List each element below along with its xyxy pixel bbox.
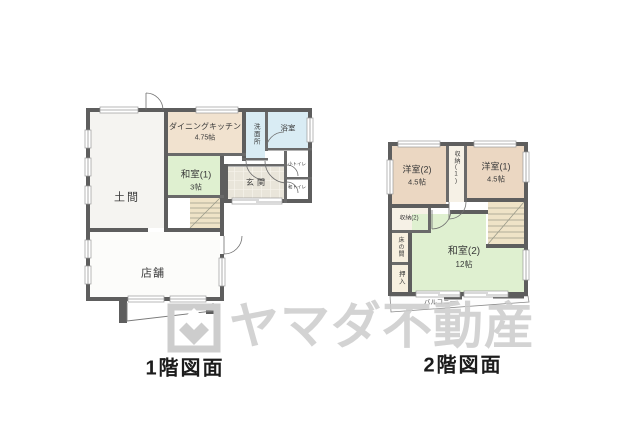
label-shuno1: 収納(1) bbox=[453, 151, 459, 186]
room-doma bbox=[90, 112, 164, 228]
staircase-1f bbox=[190, 198, 220, 228]
label-washitsu2-size: 12帖 bbox=[456, 261, 473, 269]
balcony bbox=[390, 295, 529, 312]
label-yoshitsu2: 洋室(2) bbox=[403, 166, 432, 175]
label-balcony: バルコニー bbox=[424, 300, 456, 307]
label-oshiire: 押入 bbox=[397, 271, 404, 286]
entrance-sliding-door bbox=[232, 198, 282, 204]
label-shuno2: 収納(2) bbox=[399, 215, 418, 221]
room-dining-kitchen bbox=[168, 112, 242, 153]
label-shop: 店舗 bbox=[141, 269, 165, 280]
label-genkan: 玄関 bbox=[246, 179, 268, 187]
label-toilet-small: 小トイレ bbox=[288, 162, 306, 167]
label-yokushitsu: 浴室 bbox=[281, 124, 296, 132]
label-yoshitsu1: 洋室(1) bbox=[482, 163, 511, 172]
room-yoshitsu2 bbox=[392, 146, 446, 204]
label-dining-kitchen-size: 4.75帖 bbox=[195, 135, 216, 142]
label-yoshitsu1-size: 4.5帖 bbox=[487, 175, 505, 183]
floorplan-drawing bbox=[0, 0, 640, 445]
label-dining-kitchen: ダイニングキッチン bbox=[169, 123, 241, 131]
label-washitsu2: 和室(2) bbox=[448, 247, 480, 257]
label-yoshitsu2-size: 4.5帖 bbox=[408, 178, 426, 186]
label-doma: 土間 bbox=[114, 193, 140, 204]
floorplan-image: 土間 ダイニングキッチン 4.75帖 和室(1) 3帖 洗面所 浴室 玄関 小ト… bbox=[0, 0, 640, 445]
label-tokonoma: 床の間 bbox=[397, 237, 403, 258]
staircase-2f bbox=[488, 202, 524, 244]
caption-floor1: 1階図面 bbox=[145, 352, 224, 381]
room-shop bbox=[90, 232, 220, 297]
label-senmenjo: 洗面所 bbox=[252, 123, 259, 146]
label-washitsu1-size: 3帖 bbox=[190, 183, 202, 191]
label-toilet-japanese: 和トイレ bbox=[288, 185, 306, 190]
label-washitsu1: 和室(1) bbox=[181, 170, 212, 180]
room-yoshitsu1 bbox=[467, 146, 524, 198]
caption-floor2: 2階図面 bbox=[423, 349, 502, 378]
